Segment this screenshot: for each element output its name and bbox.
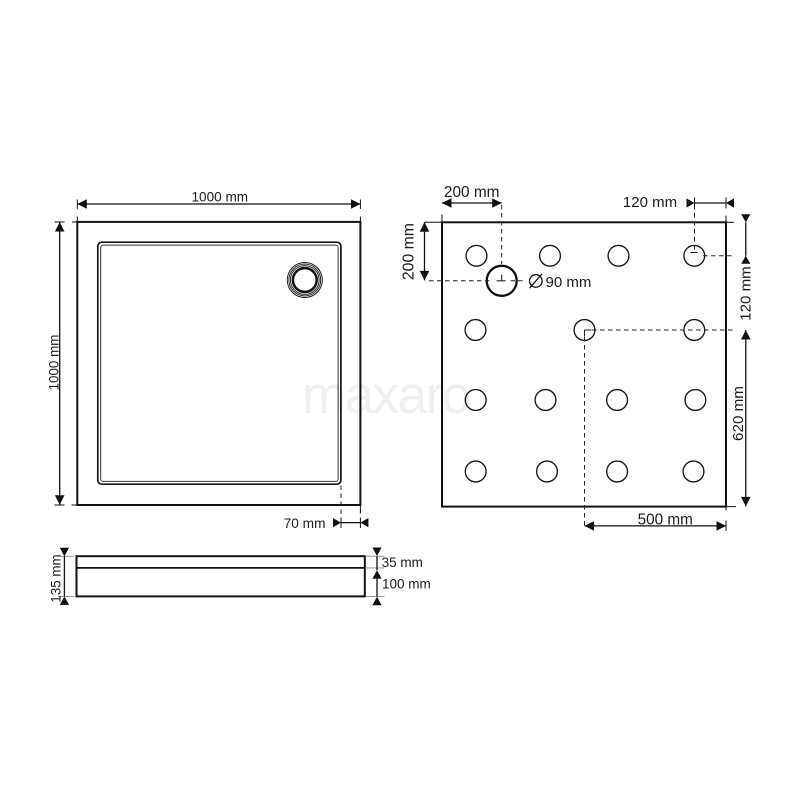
svg-text:100 mm: 100 mm [382,577,431,592]
svg-text:1000 mm: 1000 mm [191,189,248,204]
svg-text:135 mm: 135 mm [48,554,63,602]
svg-text:120 mm: 120 mm [623,194,677,211]
svg-text:1000 mm: 1000 mm [46,335,61,391]
svg-text:maxaro: maxaro [302,366,470,425]
svg-text:70 mm: 70 mm [284,516,326,531]
svg-text:35 mm: 35 mm [382,555,423,570]
svg-text:200 mm: 200 mm [401,223,418,280]
svg-text:90 mm: 90 mm [546,274,592,291]
svg-text:120 mm: 120 mm [738,266,755,321]
svg-text:620 mm: 620 mm [730,386,747,441]
svg-text:200 mm: 200 mm [444,184,500,201]
svg-text:500 mm: 500 mm [638,511,693,528]
